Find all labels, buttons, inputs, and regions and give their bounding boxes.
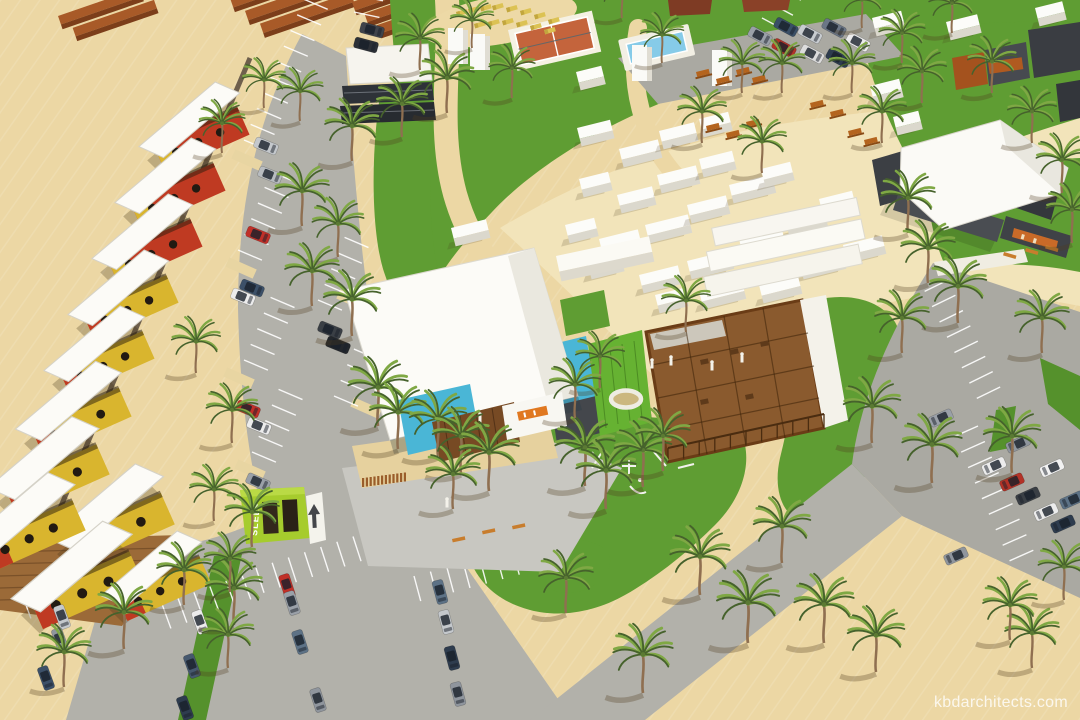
fence-post [377, 476, 379, 485]
white-pillar [470, 34, 490, 70]
fence-post [381, 476, 383, 485]
fence-post [370, 477, 372, 486]
fence-post [389, 475, 391, 484]
fence-post [366, 478, 368, 487]
round-planter [611, 391, 641, 408]
person-figure [669, 355, 673, 365]
fence-post [400, 473, 402, 482]
person-figure [740, 352, 744, 362]
fence-post [373, 477, 375, 486]
person-figure [445, 497, 449, 507]
fence-post [404, 473, 406, 482]
fence-post [392, 474, 394, 483]
fence-post [362, 478, 364, 487]
site-plan-rendering: SLEEP [0, 0, 1080, 720]
fence-post [385, 475, 387, 484]
white-pillar [632, 45, 652, 81]
person-figure [650, 358, 654, 368]
person-figure [710, 360, 714, 370]
architectural-rendering: SLEEP kbdarchitects.com [0, 0, 1080, 720]
fence-post [396, 474, 398, 483]
watermark-credit: kbdarchitects.com [934, 694, 1068, 712]
